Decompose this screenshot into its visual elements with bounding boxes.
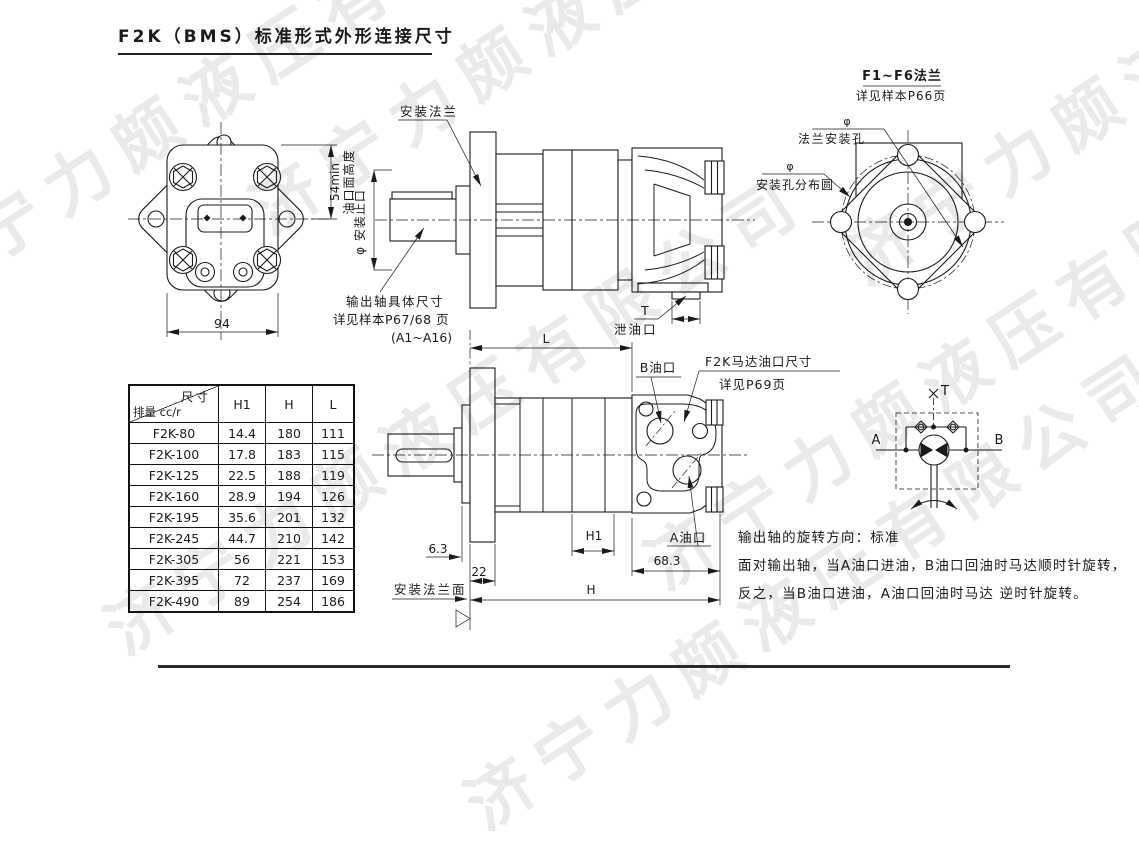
label-port-a: A油口 xyxy=(670,530,707,545)
table-row: F2K-10017.8183115 xyxy=(129,444,354,465)
shaft-note-line1: 输出轴具体尺寸 xyxy=(346,294,444,309)
cell-h: 188 xyxy=(266,465,313,486)
corner-label-size: 尺寸 xyxy=(181,388,211,405)
cell-l: 132 xyxy=(313,507,355,528)
hydraulic-schematic xyxy=(876,389,1002,509)
dim-l: L xyxy=(543,331,550,346)
shaft-note-line3: (A1~A16) xyxy=(391,330,452,345)
column-header-l: L xyxy=(313,385,355,423)
cell-h1: 72 xyxy=(219,570,266,591)
port-note-line2: 详见P69页 xyxy=(719,377,786,392)
flange-view-title: F1~F6法兰 xyxy=(862,68,942,84)
label-drain-port: 泄油口 xyxy=(614,322,658,337)
cell-l: 115 xyxy=(313,444,355,465)
cell-model: F2K-305 xyxy=(129,549,219,570)
cell-model: F2K-490 xyxy=(129,591,219,613)
schematic-port-a: A xyxy=(872,433,881,448)
label-hole-phi: φ xyxy=(843,115,850,128)
dim-22: 22 xyxy=(471,565,486,579)
cell-h: 237 xyxy=(266,570,313,591)
table-header-row: 尺寸 排量 cc/r H1 H L xyxy=(129,385,354,423)
dim-94: 94 xyxy=(214,316,230,331)
cell-l: 169 xyxy=(313,570,355,591)
cell-h1: 17.8 xyxy=(219,444,266,465)
label-mount-face: 安装法兰面 xyxy=(394,582,467,597)
cell-h1: 22.5 xyxy=(219,465,266,486)
cell-h1: 44.7 xyxy=(219,528,266,549)
label-mounting-flange: 安装法兰 xyxy=(400,104,458,119)
cell-model: F2K-195 xyxy=(129,507,219,528)
table-row: F2K-16028.9194126 xyxy=(129,486,354,507)
cell-h1: 14.4 xyxy=(219,423,266,444)
side-view-drawing xyxy=(375,132,755,308)
table-row: F2K-12522.5188119 xyxy=(129,465,354,486)
cell-model: F2K-80 xyxy=(129,423,219,444)
cell-h1: 35.6 xyxy=(219,507,266,528)
cell-l: 142 xyxy=(313,528,355,549)
label-flange-mount-hole: 法兰安装孔 xyxy=(798,131,866,146)
cell-h1: 56 xyxy=(219,549,266,570)
cell-model: F2K-160 xyxy=(129,486,219,507)
dimension-table: 尺寸 排量 cc/r H1 H L F2K-8014.4180111 F2K-1… xyxy=(128,384,355,613)
cell-h: 201 xyxy=(266,507,313,528)
table-row: F2K-30556221153 xyxy=(129,549,354,570)
cell-h1: 28.9 xyxy=(219,486,266,507)
label-drain-t: T xyxy=(640,303,649,318)
cell-h1: 89 xyxy=(219,591,266,613)
cell-h: 180 xyxy=(266,423,313,444)
table-corner-cell: 尺寸 排量 cc/r xyxy=(129,385,219,423)
cell-model: F2K-245 xyxy=(129,528,219,549)
cell-h: 210 xyxy=(266,528,313,549)
footer-rule xyxy=(158,665,1010,668)
title-underline xyxy=(118,53,432,55)
bottom-view-drawing xyxy=(372,368,748,542)
label-circle-phi: φ xyxy=(786,160,793,173)
dim-h1: H1 xyxy=(586,529,603,543)
column-header-h1: H1 xyxy=(219,385,266,423)
table-row: F2K-19535.6201132 xyxy=(129,507,354,528)
dim-6-3: 6.3 xyxy=(428,542,447,556)
rotation-note-line1: 输出轴的旋转方向：标准 xyxy=(738,526,900,546)
front-view-drawing xyxy=(128,122,332,340)
cell-model: F2K-100 xyxy=(129,444,219,465)
flange-view-drawing xyxy=(812,130,1004,314)
plug-x-mark xyxy=(929,389,938,398)
schematic-port-t: T xyxy=(940,384,949,399)
table-row: F2K-24544.7210142 xyxy=(129,528,354,549)
dim-h: H xyxy=(586,583,595,597)
port-note-line1: F2K马达油口尺寸 xyxy=(705,354,812,369)
cell-l: 126 xyxy=(313,486,355,507)
cell-l: 119 xyxy=(313,465,355,486)
cell-h: 183 xyxy=(266,444,313,465)
rotation-note-line2: 面对输出轴，当A油口进油，B油口回油时马达顺时针旋转， xyxy=(738,554,1126,574)
table-row: F2K-39572237169 xyxy=(129,570,354,591)
cell-model: F2K-395 xyxy=(129,570,219,591)
cell-l: 153 xyxy=(313,549,355,570)
cell-model: F2K-125 xyxy=(129,465,219,486)
dim-54min: 54min xyxy=(328,163,342,201)
corner-label-displacement: 排量 cc/r xyxy=(133,404,181,420)
schematic-port-b: B xyxy=(995,433,1004,448)
table-row: F2K-49089254186 xyxy=(129,591,354,613)
column-header-h: H xyxy=(266,385,313,423)
dim-68-3: 68.3 xyxy=(654,554,681,568)
shaft-note-line2: 详见样本P67/68 页 xyxy=(333,312,449,327)
cell-h: 221 xyxy=(266,549,313,570)
cell-l: 186 xyxy=(313,591,355,613)
label-pilot-spigot: φ 安装止口 xyxy=(352,189,367,255)
rotation-note-line3: 反之，当B油口进油，A油口回油时马达 逆时针旋转。 xyxy=(738,582,1088,602)
cell-l: 111 xyxy=(313,423,355,444)
flange-view-subtitle: 详见样本P66页 xyxy=(856,88,947,103)
label-bolt-circle: 安装孔分布圆 xyxy=(756,177,834,192)
cell-h: 194 xyxy=(266,486,313,507)
table-row: F2K-8014.4180111 xyxy=(129,423,354,444)
label-port-b: B油口 xyxy=(640,360,677,375)
cell-h: 254 xyxy=(266,591,313,613)
page-title: F2K（BMS）标准形式外形连接尺寸 xyxy=(118,22,455,47)
